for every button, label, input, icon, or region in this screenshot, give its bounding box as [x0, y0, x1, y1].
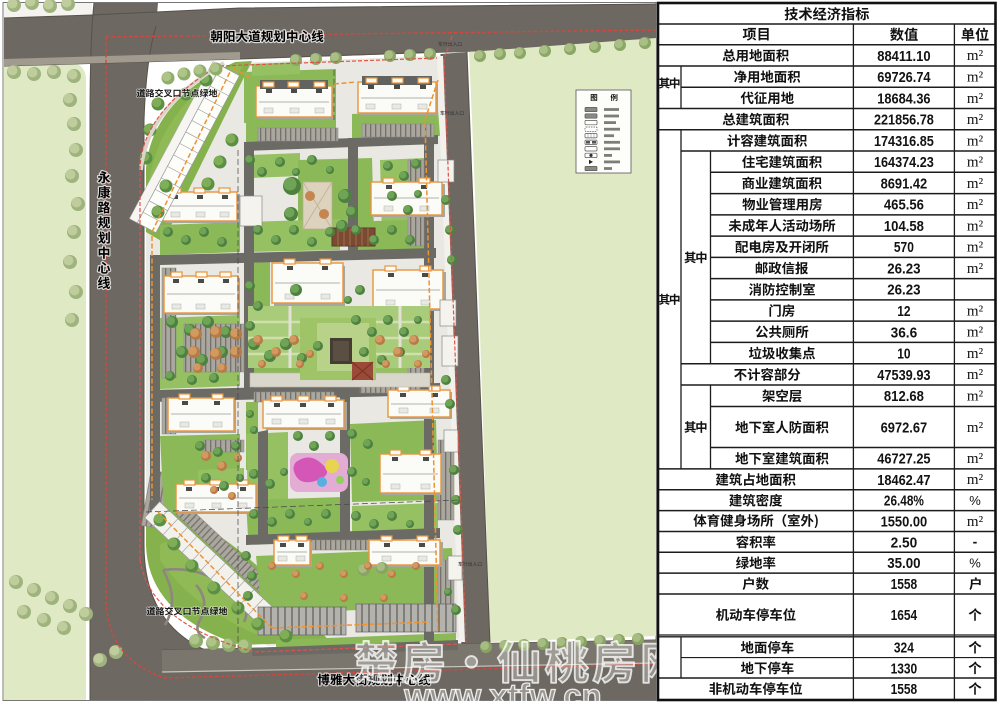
svg-text:m²: m²: [967, 176, 984, 192]
svg-text:1558: 1558: [891, 576, 918, 593]
svg-text:m²: m²: [967, 451, 984, 467]
svg-text:m²: m²: [967, 197, 984, 213]
svg-text:46727.25: 46727.25: [877, 451, 931, 468]
svg-text:m²: m²: [967, 389, 984, 405]
svg-text:%: %: [969, 555, 981, 570]
svg-text:47539.93: 47539.93: [877, 367, 930, 384]
svg-text:m²: m²: [967, 514, 984, 530]
svg-text:m²: m²: [967, 303, 984, 319]
svg-text:174316.85: 174316.85: [874, 133, 934, 150]
svg-text:26.23: 26.23: [887, 282, 920, 299]
svg-text:m²: m²: [967, 112, 984, 128]
svg-text:18684.36: 18684.36: [877, 90, 930, 107]
svg-text:m²: m²: [967, 70, 984, 86]
svg-text:m²: m²: [967, 367, 984, 383]
svg-text:221856.78: 221856.78: [874, 112, 934, 129]
svg-text:6972.67: 6972.67: [881, 420, 928, 437]
svg-text:465.56: 465.56: [884, 197, 924, 214]
svg-text:-: -: [973, 534, 978, 550]
svg-text:2.50: 2.50: [891, 534, 918, 551]
svg-text:m²: m²: [967, 261, 984, 277]
svg-text:570: 570: [894, 239, 914, 256]
svg-text:8691.42: 8691.42: [881, 175, 928, 192]
svg-text:m²: m²: [967, 472, 984, 488]
svg-text:m²: m²: [967, 240, 984, 256]
svg-text:m²: m²: [967, 91, 984, 107]
svg-text:12: 12: [897, 303, 910, 320]
svg-text:10: 10: [897, 346, 910, 363]
svg-text:324: 324: [894, 640, 914, 657]
svg-text:35.00: 35.00: [887, 555, 920, 572]
svg-text:69726.74: 69726.74: [877, 69, 931, 86]
svg-text:18462.47: 18462.47: [877, 472, 930, 489]
svg-text:m²: m²: [967, 155, 984, 171]
svg-text:m²: m²: [967, 325, 984, 341]
svg-text:m²: m²: [967, 346, 984, 362]
svg-text:1654: 1654: [891, 607, 918, 624]
svg-text:m²: m²: [967, 48, 984, 64]
svg-text:m²: m²: [967, 420, 984, 436]
svg-text:26.48%: 26.48%: [884, 493, 924, 510]
svg-text:%: %: [969, 493, 981, 508]
svg-text:812.68: 812.68: [884, 388, 924, 405]
svg-text:m²: m²: [967, 133, 984, 149]
svg-text:36.6: 36.6: [891, 324, 918, 341]
svg-text:m²: m²: [967, 218, 984, 234]
svg-text:1330: 1330: [891, 660, 918, 677]
svg-text:104.58: 104.58: [884, 218, 924, 235]
svg-text:164374.23: 164374.23: [874, 154, 934, 171]
svg-text:26.23: 26.23: [887, 261, 920, 278]
svg-text:1558: 1558: [891, 681, 918, 698]
svg-text:1550.00: 1550.00: [881, 514, 928, 531]
svg-text:www.xtfw.cn: www.xtfw.cn: [403, 677, 601, 710]
svg-text:88411.10: 88411.10: [877, 48, 930, 65]
